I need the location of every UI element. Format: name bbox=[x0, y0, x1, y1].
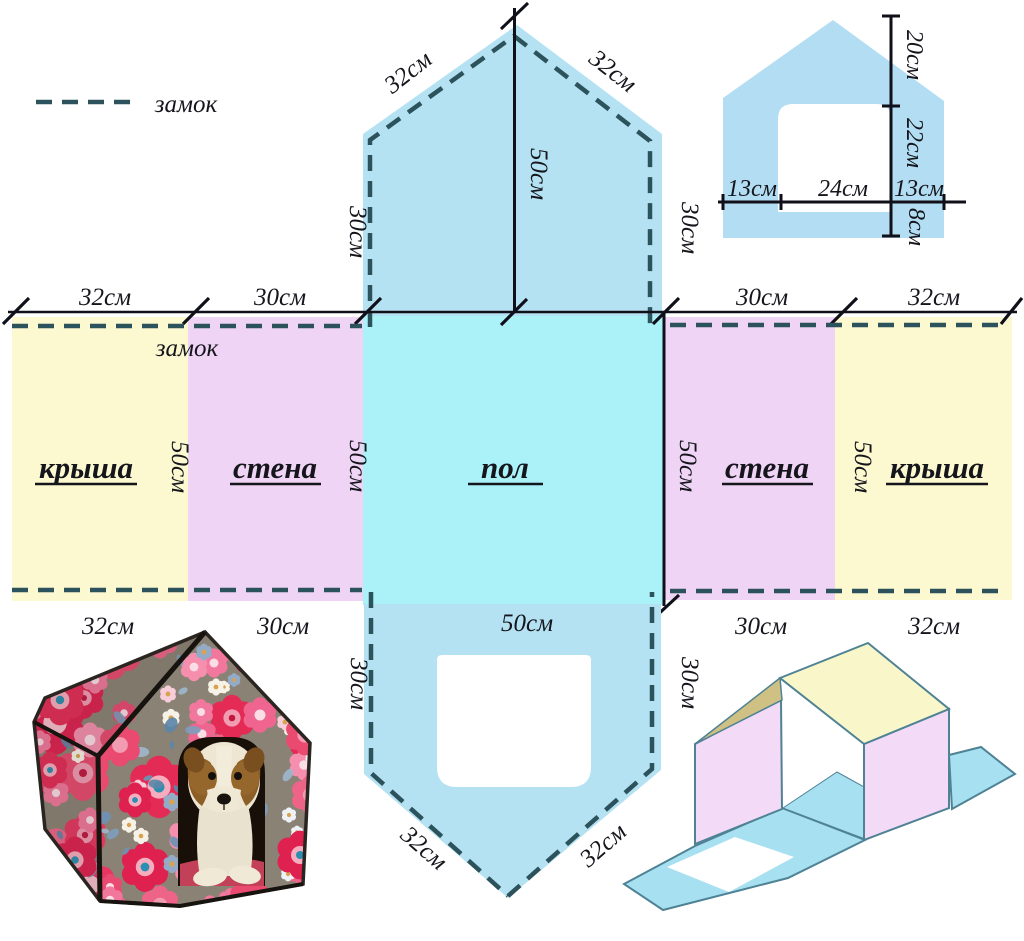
svg-text:13см: 13см bbox=[894, 176, 944, 202]
svg-text:13см: 13см bbox=[727, 176, 777, 202]
svg-text:32см: 32см bbox=[907, 613, 960, 640]
svg-text:30см: 30см bbox=[676, 656, 703, 709]
svg-text:30см: 30см bbox=[734, 613, 787, 640]
svg-text:крыша: крыша bbox=[890, 450, 984, 485]
svg-text:20см: 20см bbox=[901, 30, 927, 80]
svg-text:пол: пол bbox=[481, 450, 529, 485]
svg-text:30см: 30см bbox=[344, 205, 371, 258]
svg-text:30см: 30см bbox=[253, 284, 306, 311]
svg-text:24см: 24см bbox=[818, 176, 868, 202]
svg-text:22см: 22см bbox=[901, 118, 927, 168]
svg-text:50см: 50см bbox=[166, 441, 193, 493]
svg-text:32см: 32см bbox=[78, 284, 131, 311]
svg-text:крыша: крыша bbox=[39, 450, 133, 485]
svg-text:замок: замок bbox=[155, 335, 219, 362]
svg-text:стена: стена bbox=[233, 450, 317, 485]
svg-text:30см: 30см bbox=[345, 657, 372, 710]
svg-text:50см: 50см bbox=[501, 610, 553, 637]
svg-text:30см: 30см bbox=[676, 201, 703, 254]
svg-text:50см: 50см bbox=[344, 440, 371, 492]
svg-text:8см: 8см bbox=[903, 208, 929, 246]
svg-text:50см: 50см bbox=[849, 441, 876, 493]
svg-text:стена: стена bbox=[725, 450, 809, 485]
svg-text:30см: 30см bbox=[256, 613, 309, 640]
svg-text:32см: 32см bbox=[907, 284, 960, 311]
svg-text:32см: 32см bbox=[81, 613, 134, 640]
svg-text:30см: 30см bbox=[735, 284, 788, 311]
svg-text:замок: замок bbox=[154, 91, 218, 118]
svg-text:50см: 50см bbox=[525, 148, 552, 200]
svg-text:50см: 50см bbox=[674, 440, 701, 492]
